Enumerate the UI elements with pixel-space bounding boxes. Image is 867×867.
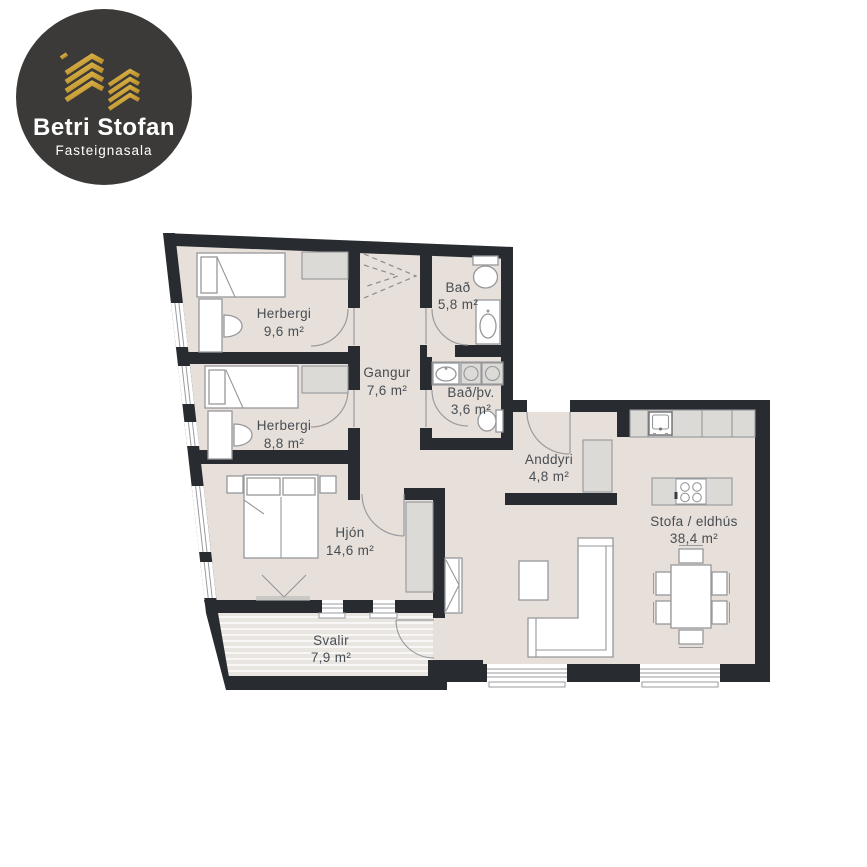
window-hjon-south-a <box>319 600 345 618</box>
floorplan-page: Betri Stofan Fasteignasala <box>0 0 867 867</box>
wall-anddyri-bottom <box>505 493 617 505</box>
kitchen-island-icon <box>652 478 732 505</box>
desk-icon <box>208 411 232 459</box>
wardrobe-icon <box>302 252 348 279</box>
window-living-b <box>640 664 720 687</box>
room-name: Anddyri <box>525 452 573 467</box>
room-name: Svalir <box>313 633 349 648</box>
wall-hjon-door-side <box>404 488 445 500</box>
wall-bedroom-divider <box>180 352 360 364</box>
logo-subtitle: Fasteignasala <box>55 143 152 158</box>
wall-balcony-right-b <box>433 660 445 677</box>
wall-bedrooms-a <box>348 247 360 308</box>
window-hjon-south-b <box>370 600 397 618</box>
logo-circle <box>16 9 192 185</box>
coffee-table-icon <box>519 561 548 600</box>
wall-balcony-right-a <box>433 613 445 618</box>
room-area: 9,6 m² <box>264 324 305 339</box>
laundry-counter-icon <box>432 362 503 385</box>
logo: Betri Stofan Fasteignasala <box>16 9 192 185</box>
room-name: Hjón <box>335 525 364 540</box>
room-area: 5,8 m² <box>438 297 479 312</box>
room-area: 4,8 m² <box>529 469 570 484</box>
bed-icon <box>197 253 285 297</box>
wall-bathwc-bottom <box>420 438 513 450</box>
room-area: 8,8 m² <box>264 436 305 451</box>
toilet-icon <box>473 256 498 288</box>
room-name: Herbergi <box>257 418 312 433</box>
wall-bathwc-left-a <box>420 357 432 390</box>
room-name: Gangur <box>363 365 410 380</box>
bed-icon <box>205 366 298 408</box>
desk-icon <box>199 299 222 352</box>
wall-anddyri-top-left <box>513 400 527 412</box>
room-area: 38,4 m² <box>670 531 718 546</box>
room-area: 14,6 m² <box>326 543 374 558</box>
kitchen-counter-icon <box>630 410 755 437</box>
room-area: 3,6 m² <box>451 402 492 417</box>
sink-vanity-icon <box>476 300 500 344</box>
room-name: Bað/þv. <box>447 385 494 400</box>
wall-bath-divider-b <box>455 345 513 357</box>
wardrobe-icon <box>406 502 433 592</box>
wardrobe-icon <box>302 366 348 393</box>
dining-table-icon <box>671 565 711 628</box>
wall-anddyri-right <box>617 400 630 437</box>
wall-bath-divider-a <box>420 345 427 357</box>
logo-title: Betri Stofan <box>33 114 175 141</box>
room-name: Herbergi <box>257 306 312 321</box>
wall-hjon-right <box>433 500 445 613</box>
wall-bath-left-upper <box>420 247 432 308</box>
wall-right <box>755 400 770 682</box>
floor-plan-svg: Betri Stofan Fasteignasala <box>0 0 867 867</box>
room-name: Bað <box>445 280 470 295</box>
room-area: 7,9 m² <box>311 650 352 665</box>
window-living-a <box>487 664 567 687</box>
kitchen-sink-icon <box>649 412 672 435</box>
room-name: Stofa / eldhús <box>650 514 737 529</box>
tv-icon <box>445 558 462 613</box>
room-area: 7,6 m² <box>367 383 408 398</box>
wall-balcony-bottom <box>224 676 447 690</box>
closet-icon <box>583 440 612 492</box>
